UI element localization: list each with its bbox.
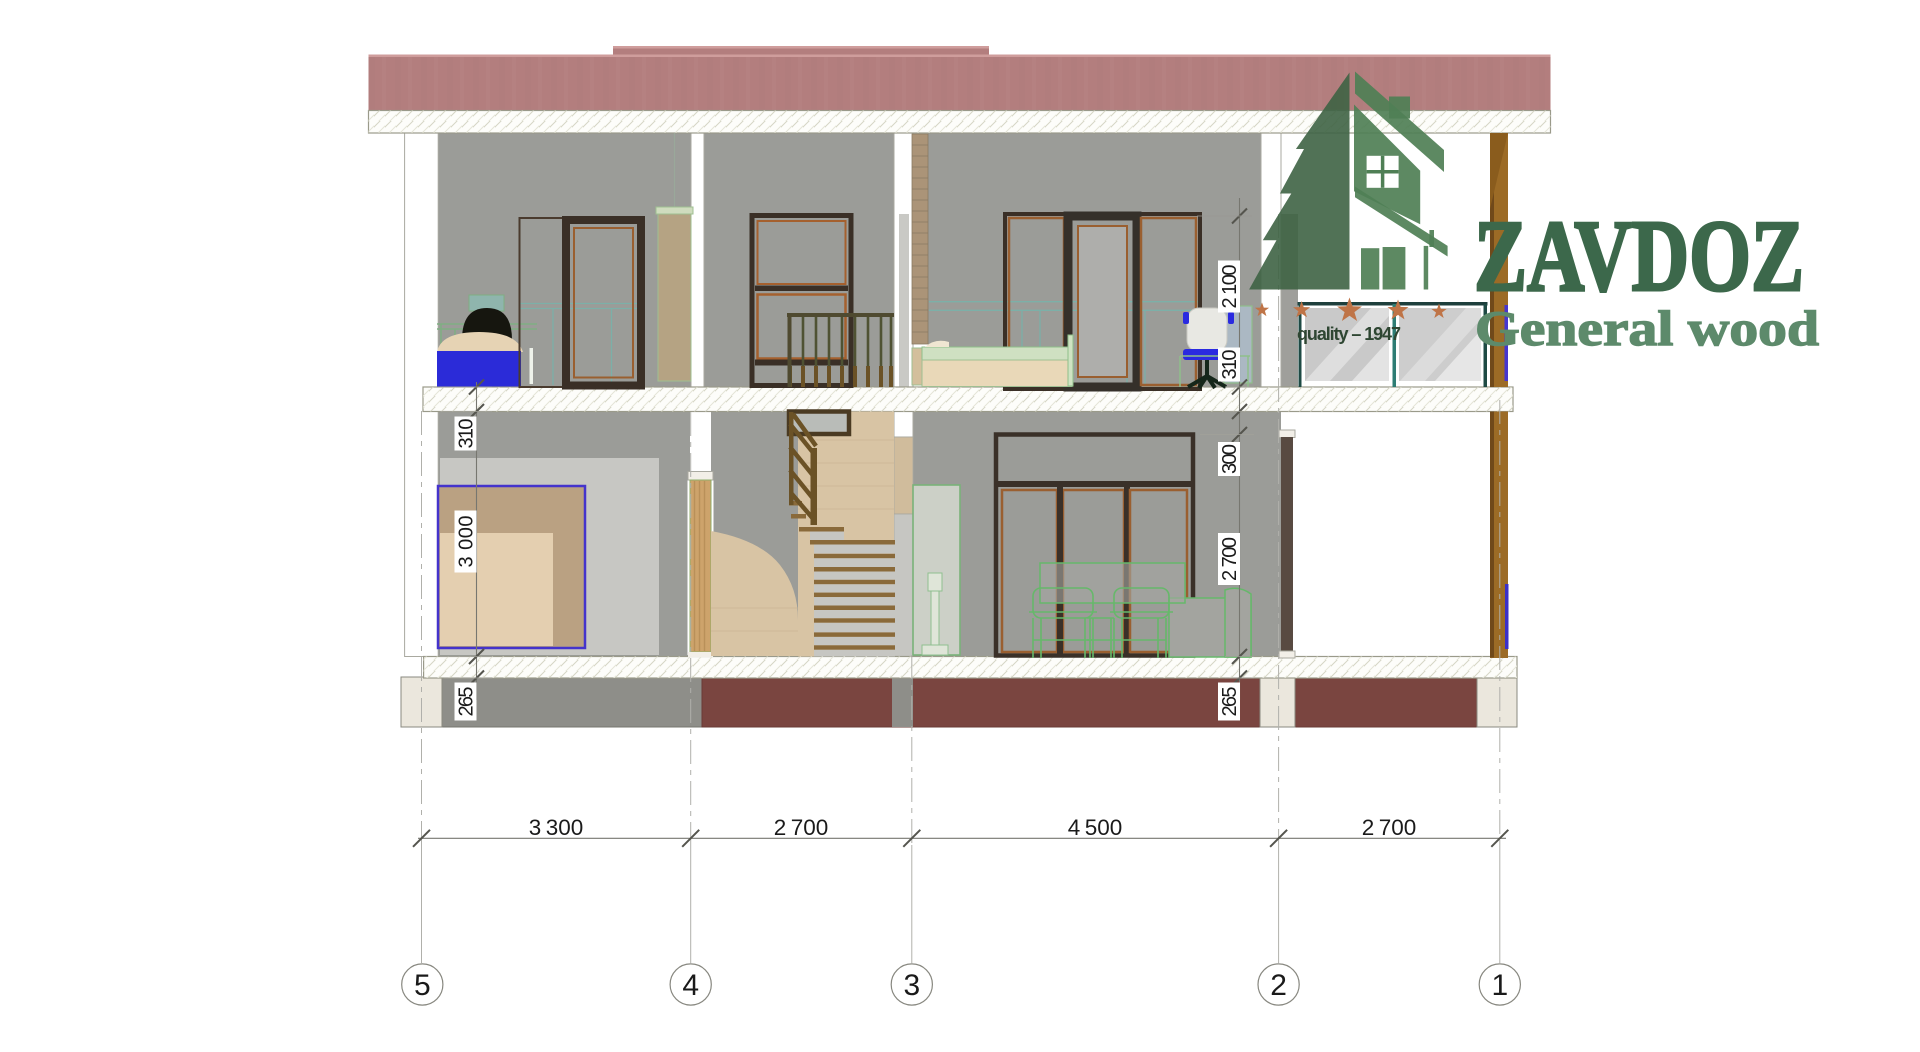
svg-text:4 500: 4 500 <box>1068 815 1123 840</box>
svg-text:265: 265 <box>456 687 478 717</box>
svg-text:5: 5 <box>414 969 431 1002</box>
svg-text:3: 3 <box>903 969 920 1002</box>
svg-text:General wood: General wood <box>1475 300 1819 356</box>
svg-text:2: 2 <box>1270 969 1287 1002</box>
svg-text:2 700: 2 700 <box>1362 815 1417 840</box>
svg-text:ZAVDOZ: ZAVDOZ <box>1474 200 1804 313</box>
svg-text:4: 4 <box>682 969 699 1002</box>
svg-text:265: 265 <box>1219 687 1241 717</box>
svg-text:310: 310 <box>1219 350 1241 380</box>
svg-text:quality – 1947: quality – 1947 <box>1297 324 1401 344</box>
svg-text:300: 300 <box>1219 444 1241 474</box>
svg-text:310: 310 <box>456 419 478 449</box>
svg-text:3 000: 3 000 <box>456 516 478 568</box>
svg-text:2 100: 2 100 <box>1219 265 1241 309</box>
svg-text:2 700: 2 700 <box>1219 537 1241 581</box>
svg-text:2 700: 2 700 <box>774 815 829 840</box>
svg-text:3 300: 3 300 <box>529 815 584 840</box>
svg-text:1: 1 <box>1491 969 1508 1002</box>
